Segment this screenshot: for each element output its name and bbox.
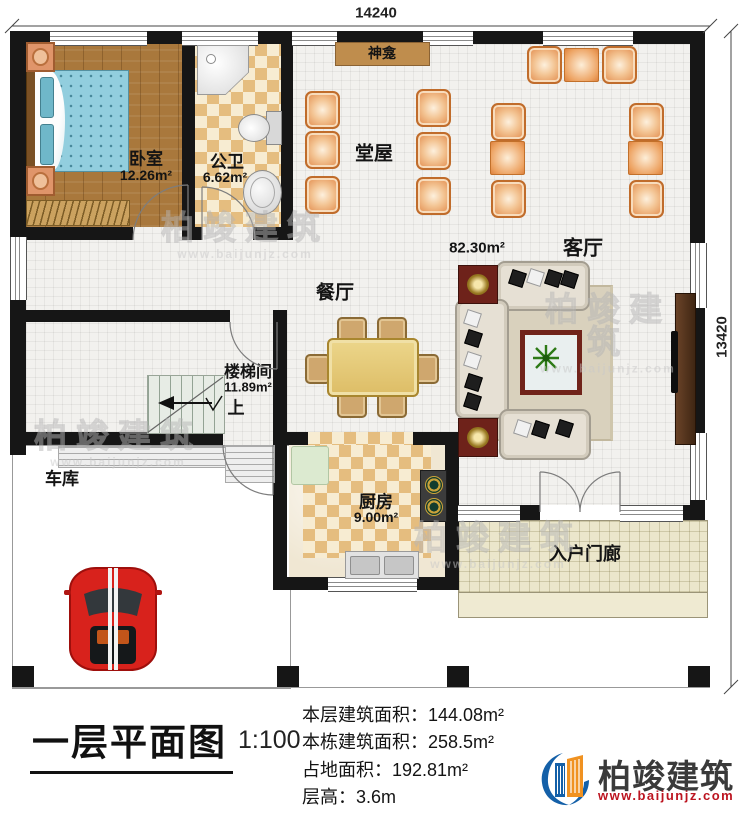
- stairwell-up-label: 上: [228, 394, 245, 419]
- hall-chair: [629, 103, 664, 141]
- kitchen-entry-floor: [308, 432, 413, 445]
- info-row: 占地面积：192.81m²: [302, 757, 504, 784]
- stove: [420, 470, 447, 522]
- burner-icon: [425, 476, 443, 494]
- hall-side-table: [628, 141, 663, 175]
- bathroom-sink: [243, 170, 282, 215]
- window-kitchen-south: [328, 577, 417, 592]
- hall-side-table: [490, 141, 525, 175]
- sofa-pillow: [464, 329, 483, 348]
- nightstand-bottom: [26, 166, 55, 196]
- bedroom-label: 卧室: [129, 145, 163, 170]
- living-room-label: 客厅: [563, 232, 603, 261]
- wall-kitchen-right: [445, 432, 459, 590]
- hall-chair: [491, 103, 526, 141]
- window-top-2: [182, 31, 258, 46]
- info-label: 本栋建筑面积：: [302, 732, 428, 752]
- sofa-pillow: [464, 373, 483, 392]
- kitchen-sink: [345, 551, 419, 579]
- stairwell-area: 11.89m²: [224, 380, 272, 395]
- site-column: [688, 666, 710, 687]
- info-value: 192.81m²: [392, 760, 468, 780]
- plant-icon: [531, 343, 561, 373]
- living-room-area: 82.30m²: [449, 240, 505, 257]
- site-column: [277, 666, 299, 687]
- info-value: 258.5m²: [428, 732, 494, 752]
- window-top-4: [423, 31, 473, 46]
- info-value: 3.6m: [356, 787, 396, 807]
- hall-chair: [305, 91, 340, 129]
- dining-room-label: 餐厅: [316, 278, 354, 305]
- bathroom-area: 6.62m²: [203, 169, 247, 185]
- sofa-top: [496, 261, 590, 311]
- side-table-top: [458, 265, 498, 304]
- window-porch-left: [458, 505, 520, 522]
- fridge: [291, 446, 329, 485]
- hall-chair: [629, 180, 664, 218]
- hall-label: 堂屋: [355, 139, 393, 166]
- sofa-pillow: [508, 269, 527, 288]
- drawing-title: 一层平面图: [30, 712, 233, 774]
- hall-chair: [416, 132, 451, 170]
- info-label: 层高：: [302, 787, 356, 807]
- sofa-pillow: [555, 419, 574, 438]
- dining-table: [327, 338, 419, 397]
- tv-cabinet: [675, 293, 696, 445]
- site-boundary-line: [12, 687, 710, 688]
- drawing-scale: 1:100: [238, 726, 301, 755]
- info-row: 层高：3.6m: [302, 784, 504, 811]
- wall-dining-stairwell: [10, 310, 230, 322]
- hall-chair: [416, 89, 451, 127]
- car: [64, 566, 162, 672]
- bed-pillow-1: [40, 77, 54, 118]
- porch-label: 入户门廊: [549, 540, 621, 566]
- site-column: [447, 666, 469, 687]
- sofa-bottom: [499, 409, 591, 460]
- garage-entry-steps: [58, 446, 232, 468]
- bedroom-area: 12.26m²: [120, 167, 172, 183]
- window-left: [10, 237, 27, 300]
- side-table-ornament-icon: [467, 274, 489, 295]
- building-info: 本层建筑面积：144.08m² 本栋建筑面积：258.5m² 占地面积：192.…: [302, 702, 504, 812]
- tv: [671, 331, 678, 393]
- hall-chair: [305, 131, 340, 169]
- shrine-label: 神龛: [368, 43, 396, 63]
- hall-chair: [491, 180, 526, 218]
- sofa-pillow: [531, 420, 550, 439]
- garage-label: 车库: [45, 465, 79, 490]
- wardrobe: [26, 200, 130, 226]
- wall-bedroom-bathroom: [182, 31, 195, 240]
- bed-pillow-2: [40, 124, 54, 165]
- info-label: 占地面积：: [302, 760, 392, 780]
- company-website: www.baijunjz.com: [598, 788, 734, 803]
- dimension-right: 13420: [714, 316, 731, 358]
- porch-column-right: [683, 505, 705, 520]
- wall-kitchen-north-a: [287, 432, 308, 445]
- sofa-pillow: [463, 392, 482, 411]
- stair-landing-steps: [225, 445, 275, 483]
- info-row: 本层建筑面积：144.08m²: [302, 702, 504, 729]
- hall-side-table: [564, 48, 599, 82]
- info-label: 本层建筑面积：: [302, 705, 428, 725]
- stairwell-label: 楼梯间: [224, 358, 272, 382]
- side-table-ornament-icon: [467, 427, 489, 448]
- wall-bathroom-hall: [281, 31, 293, 240]
- nightstand-top: [26, 42, 55, 72]
- burner-icon: [425, 498, 443, 516]
- wall-bedroom-south-a: [10, 227, 133, 240]
- sofa-left: [455, 299, 509, 419]
- wall-stairwell-right: [273, 310, 287, 590]
- sofa-pillow: [560, 270, 579, 289]
- window-top-5: [543, 31, 633, 46]
- sofa-pillow: [513, 419, 532, 438]
- hall-chair: [602, 46, 637, 84]
- side-table-bottom: [458, 418, 498, 457]
- floor-plan: 14240 13420 卧室 12.26m² 公卫 6.62m² 神龛 堂屋 8…: [0, 0, 750, 817]
- sofa-pillow: [526, 268, 545, 287]
- site-column: [12, 666, 34, 687]
- stairs: [147, 375, 225, 434]
- window-top-3: [292, 31, 337, 46]
- hall-chair: [416, 177, 451, 215]
- sofa-pillow: [463, 309, 482, 328]
- hall-chair: [305, 176, 340, 214]
- window-top-1: [50, 31, 147, 46]
- coffee-table: [520, 330, 582, 395]
- window-porch-right: [620, 505, 683, 522]
- wall-bedroom-south-b: [188, 227, 202, 240]
- wall-bathroom-south: [253, 227, 293, 240]
- hall-chair: [527, 46, 562, 84]
- info-row: 本栋建筑面积：258.5m²: [302, 729, 504, 756]
- porch-step: [458, 592, 708, 618]
- sofa-pillow: [544, 269, 563, 288]
- porch-column-left: [520, 505, 540, 520]
- sofa-pillow: [463, 351, 482, 370]
- company-logo-icon: [538, 749, 592, 807]
- info-value: 144.08m²: [428, 705, 504, 725]
- toilet-bowl: [238, 114, 270, 142]
- dimension-top: 14240: [355, 5, 397, 22]
- shower-drain-icon: [206, 54, 216, 64]
- kitchen-area: 9.00m²: [354, 509, 398, 525]
